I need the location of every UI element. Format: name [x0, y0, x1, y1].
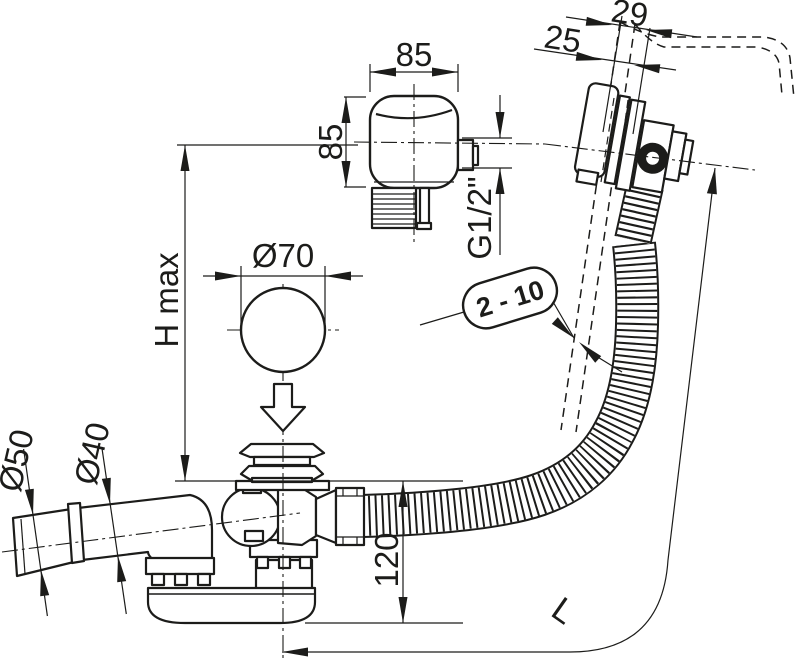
arrowhead [432, 68, 458, 77]
ball-tab-bottom [245, 531, 263, 541]
arrowhead [707, 168, 717, 194]
knob-side-outlet-face [473, 146, 478, 165]
arrowhead [342, 161, 351, 187]
down-direction-arrow-icon [261, 384, 305, 431]
overflow-connector [633, 186, 645, 240]
knob-cable-pin-foot [417, 223, 431, 229]
arrowhead [370, 68, 396, 77]
arrowhead [399, 597, 408, 623]
arrowhead [181, 145, 190, 171]
knob-thread-lines [372, 194, 416, 224]
dim-trap-height-label: 120 [368, 532, 405, 587]
dim-knob-depth-label: 85 [312, 124, 349, 161]
dim-hose-length-label: L [545, 590, 582, 632]
arrowhead [579, 342, 601, 363]
left-nut-prong-2 [175, 574, 187, 585]
arrowhead [586, 17, 612, 26]
axis-nut-prong-1 [257, 557, 268, 568]
left-union-nut [146, 558, 214, 574]
arrowhead [552, 317, 574, 338]
dim-outlet-sleeve-label: Ø50 [0, 426, 41, 495]
arrowhead [576, 52, 602, 61]
hose-cone-adapter [316, 490, 336, 543]
axis-nut-prong-2 [279, 557, 290, 568]
arrowhead [342, 97, 351, 123]
dim-installation-height-label: H max [148, 252, 185, 348]
dim-25-label: 25 [542, 17, 584, 59]
knob-side-outlet [458, 140, 473, 170]
technical-drawing-page: 85 85 G1/2" H max Ø70 120 [0, 0, 800, 659]
wall-thickness-dimension: 2 - 10 [420, 262, 622, 372]
arrowhead [117, 556, 126, 582]
overflow-unit [573, 82, 701, 200]
bath-waste-overflow-drawing: 85 85 G1/2" H max Ø70 120 [0, 0, 800, 659]
dim-plug-diameter-label: Ø70 [252, 237, 314, 274]
tub-rim-inner-line [635, 24, 782, 95]
dim-outlet-pipe-label: Ø40 [67, 419, 117, 488]
arrowhead [634, 64, 660, 73]
outlet-sleeve-ridge [68, 503, 84, 563]
left-nut-prong-3 [198, 574, 210, 585]
arrowhead [282, 648, 308, 657]
plug-cap [240, 444, 324, 457]
dim-overflow-thread: G1/2" [461, 95, 512, 260]
arrowhead [496, 112, 505, 138]
outlet-elbow-pipe [78, 495, 212, 562]
arrowhead [181, 455, 190, 481]
left-nut-prong-1 [152, 574, 164, 585]
dim-29-label: 29 [609, 0, 651, 34]
dim-overflow-thread-label: G1/2" [461, 176, 498, 259]
wall-thickness-badge: 2 - 10 [457, 262, 562, 334]
arrowhead [325, 272, 351, 281]
axis-nut-prong-3 [300, 557, 311, 568]
plug-top-view-circle [241, 288, 325, 372]
dim-knob-width-label: 85 [396, 36, 433, 73]
tub-rim-outer-line [620, 22, 794, 98]
arrowhead [40, 570, 49, 596]
drain-assembly [13, 444, 364, 623]
overflow-faceplate-step [576, 170, 598, 185]
tee-outlet-body [278, 488, 316, 545]
knob-cable-pin [420, 188, 429, 226]
arrowhead [215, 272, 241, 281]
arrowhead [646, 29, 672, 38]
plug-stem-ring [254, 457, 310, 465]
dim-knob-width: 85 [370, 36, 458, 92]
